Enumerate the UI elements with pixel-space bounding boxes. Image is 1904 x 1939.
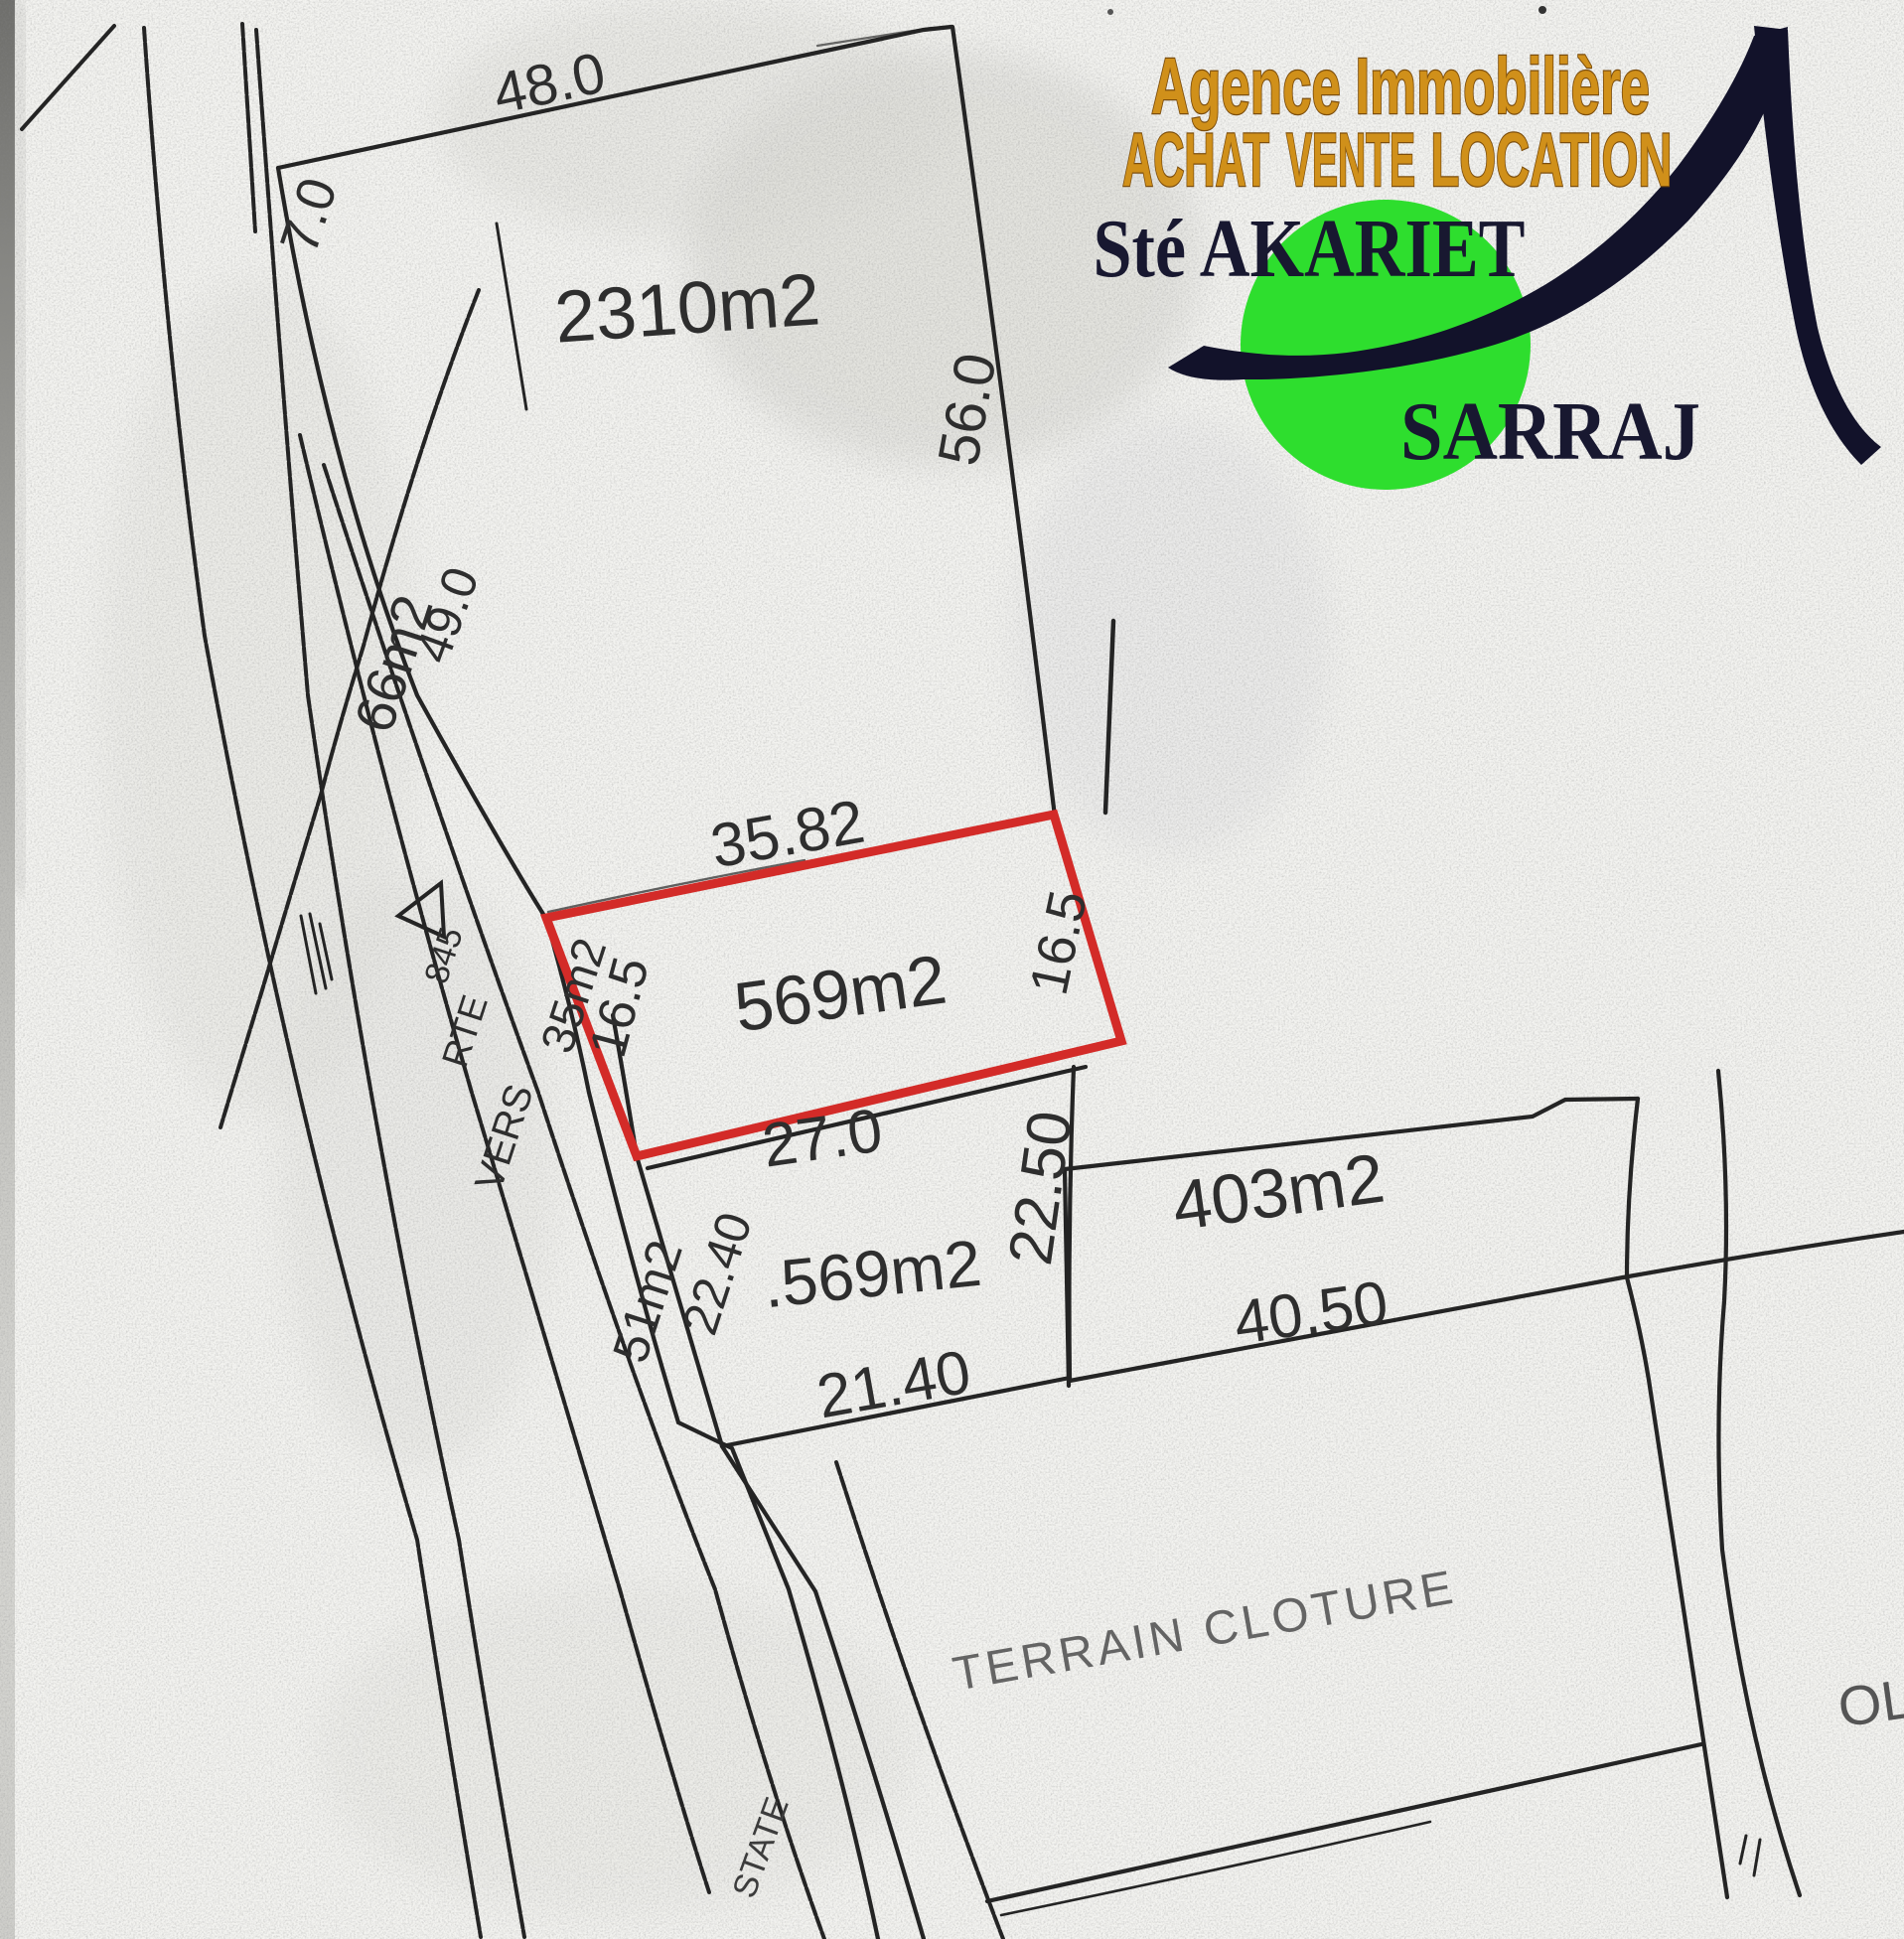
svg-text:Agence Immobilière: Agence Immobilière bbox=[1151, 42, 1650, 130]
svg-text:VENTE: VENTE bbox=[1286, 118, 1415, 203]
svg-text:LOCATION: LOCATION bbox=[1431, 118, 1673, 203]
svg-text:Sté AKARIET: Sté AKARIET bbox=[1094, 203, 1526, 295]
svg-text:ACHAT: ACHAT bbox=[1122, 118, 1269, 203]
svg-text:SARRAJ: SARRAJ bbox=[1400, 385, 1700, 478]
svg-text:OL: OL bbox=[1834, 1667, 1904, 1739]
